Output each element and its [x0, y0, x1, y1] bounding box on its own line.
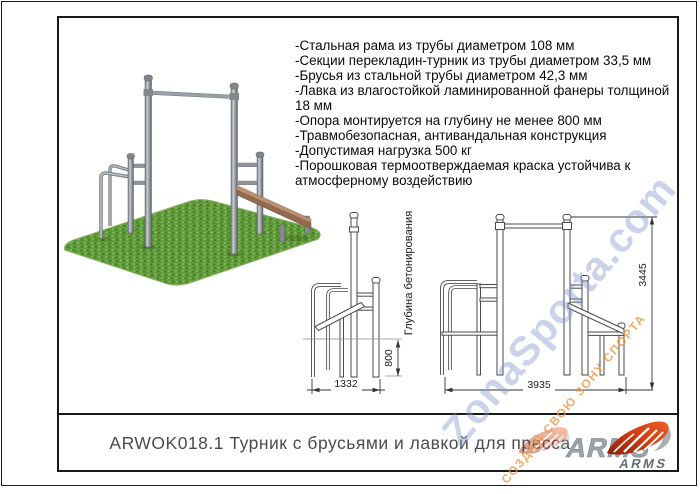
arms-logo: ARMS ARMS: [556, 418, 676, 470]
spec-item: -Допустимая нагрузка 500 кг: [295, 143, 675, 158]
spec-item: -Травмобезопасная, антивандальная констр…: [295, 128, 675, 143]
spec-item: -Опора монтируется на глубину не менее 8…: [295, 113, 675, 128]
spec-item: -Секции перекладин-турник из трубы диаме…: [295, 53, 675, 68]
title-divider: [59, 413, 677, 415]
side-width-dim: 1332: [334, 378, 358, 390]
spec-list: -Стальная рама из трубы диаметром 108 мм…: [295, 38, 675, 188]
spec-item: -Лавка из влагостойкой ламинированной фа…: [295, 83, 675, 113]
spec-item: -Порошковая термоотверждаемая краска уст…: [295, 158, 675, 188]
front-width-dim: 3935: [527, 379, 551, 391]
page-title: ARWOK018.1 Турник с брусьями и лавкой дл…: [109, 433, 570, 454]
spec-sheet-page: -Стальная рама из трубы диаметром 108 мм…: [0, 0, 700, 494]
side-view-drawing: 1332 800 Глубина бетонирования: [303, 196, 438, 401]
front-view-drawing: 3935 3445: [435, 192, 680, 404]
svg-text:ARMS: ARMS: [618, 456, 670, 470]
front-height-dim: 3445: [637, 263, 649, 287]
product-3d-render: [52, 42, 332, 292]
side-depth-dim: 800: [383, 349, 395, 367]
spec-item: -Стальная рама из трубы диаметром 108 мм: [295, 38, 675, 53]
arms-logo-subtext: ARMS: [618, 456, 670, 470]
concreting-depth-caption: Глубина бетонирования: [403, 211, 415, 336]
spec-item: -Брусья из стальной трубы диаметром 42,3…: [295, 68, 675, 83]
